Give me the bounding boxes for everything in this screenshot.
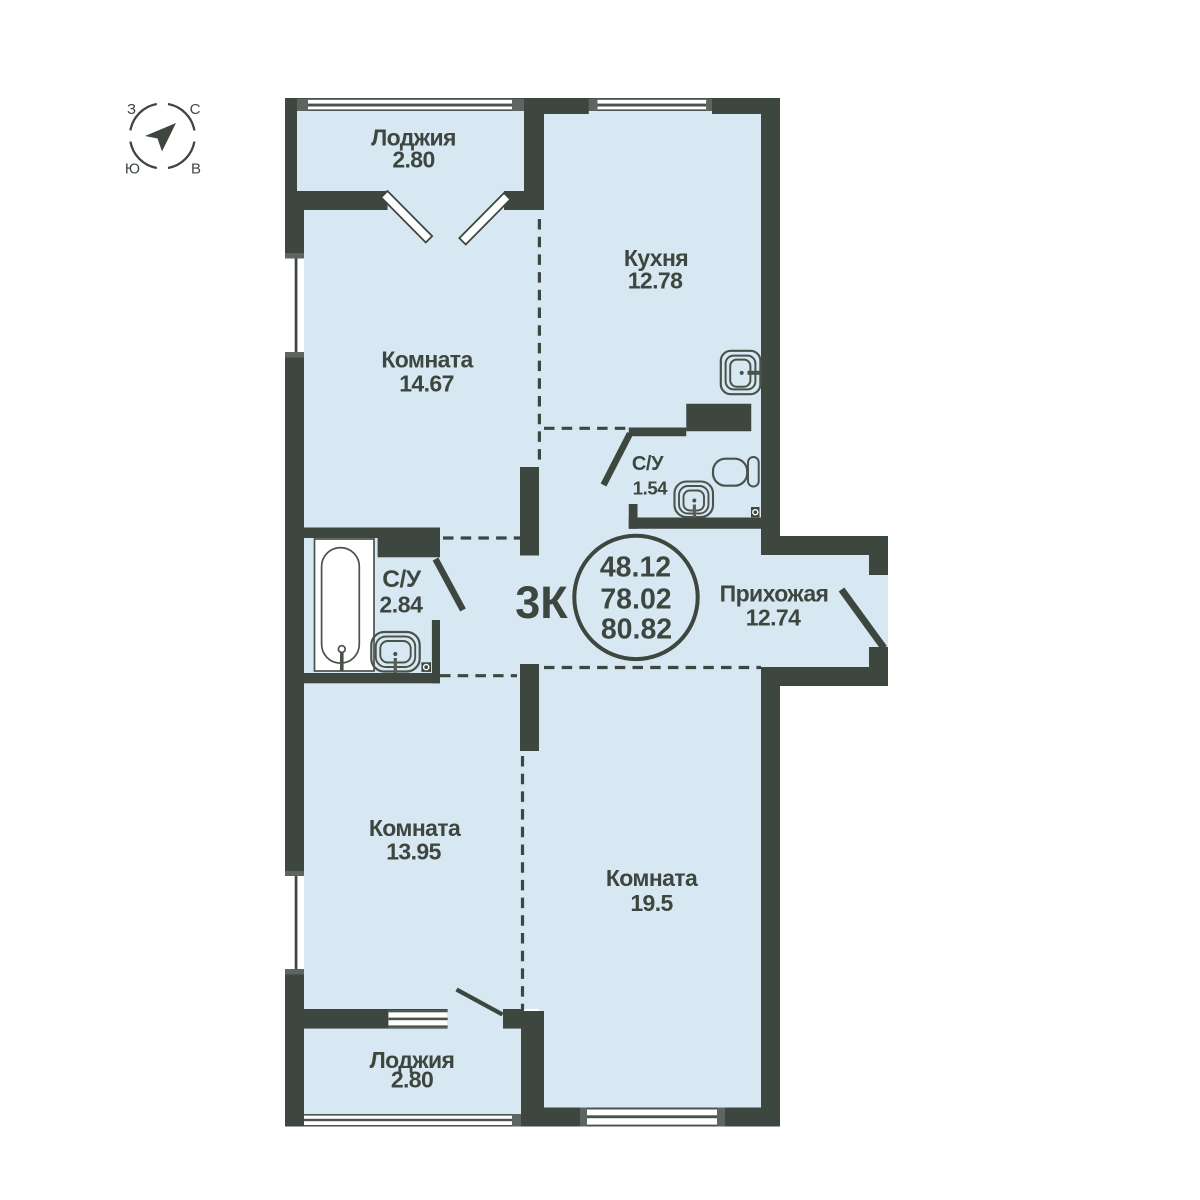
svg-text:Комната: Комната <box>606 865 698 891</box>
svg-text:2.80: 2.80 <box>392 147 434 173</box>
svg-text:Комната: Комната <box>369 815 461 841</box>
svg-text:80.82: 80.82 <box>601 614 672 646</box>
svg-text:12.78: 12.78 <box>628 268 683 294</box>
svg-text:48.12: 48.12 <box>600 552 671 584</box>
svg-text:Ю: Ю <box>125 161 140 178</box>
svg-text:12.74: 12.74 <box>746 605 801 631</box>
svg-text:2.80: 2.80 <box>391 1067 433 1093</box>
svg-text:С: С <box>190 101 201 118</box>
svg-text:С/У: С/У <box>632 453 664 475</box>
svg-text:Прихожая: Прихожая <box>720 581 829 607</box>
svg-text:13.95: 13.95 <box>386 839 441 865</box>
svg-text:14.67: 14.67 <box>399 371 454 397</box>
svg-text:3К: 3К <box>515 577 568 628</box>
svg-text:Комната: Комната <box>381 347 473 373</box>
svg-text:78.02: 78.02 <box>600 584 671 616</box>
svg-text:В: В <box>191 161 201 178</box>
svg-text:19.5: 19.5 <box>630 890 673 916</box>
svg-text:С/У: С/У <box>382 566 422 593</box>
svg-text:2.84: 2.84 <box>379 592 423 618</box>
svg-text:1.54: 1.54 <box>633 478 669 499</box>
svg-text:З: З <box>127 101 136 118</box>
